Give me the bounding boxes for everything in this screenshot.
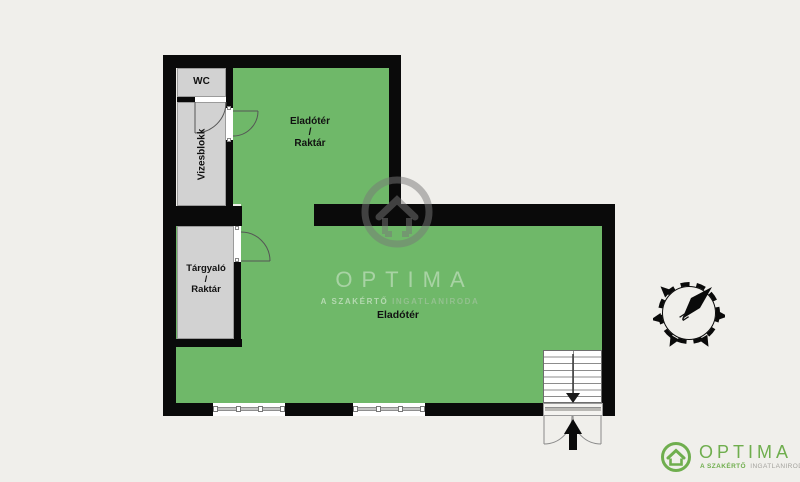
label-line: / <box>235 127 385 138</box>
stairs-divider <box>573 351 574 402</box>
room-label-sales-storage: Eladótér / Raktár <box>235 116 385 149</box>
label-line: Raktár <box>178 285 234 296</box>
door-jamb <box>227 106 231 110</box>
wall-top <box>163 55 401 68</box>
window <box>213 403 285 416</box>
label-line: Raktár <box>235 138 385 149</box>
door-jamb <box>235 258 239 262</box>
wall-bottom-c <box>425 403 543 416</box>
logo-tagline-strong: A SZAKÉRTŐ <box>700 463 746 470</box>
window-post <box>236 406 241 412</box>
stairs <box>543 350 602 403</box>
entrance-threshold <box>543 403 603 416</box>
floor-area-passage <box>241 204 314 226</box>
window-post <box>213 406 218 412</box>
wall-bottom-a <box>163 403 213 416</box>
watermark-house-icon <box>355 170 439 254</box>
entrance-double-door <box>544 416 601 444</box>
window-sill <box>213 407 285 411</box>
room-label-wet-block: Vizesblokk <box>196 128 207 180</box>
door-opening-meeting <box>234 226 241 262</box>
entrance-sill <box>545 407 601 411</box>
wall-bottom-b <box>285 403 353 416</box>
label-line: Eladótér <box>235 116 385 127</box>
wall-meeting-bottom <box>163 339 242 347</box>
door-opening-upper <box>226 108 233 140</box>
window-post <box>398 406 403 412</box>
logo-brand: OPTIMA <box>699 442 792 463</box>
room-label-wc: WC <box>177 76 226 87</box>
wall-grayrooms-right-lower <box>226 140 233 206</box>
door-jamb <box>235 226 239 230</box>
wall-meeting-right <box>234 262 241 339</box>
watermark-tagline: A SZAKÉRTŐ INGATLANIRODA <box>300 297 500 306</box>
room-label-sales-floor: Eladótér <box>298 309 498 321</box>
wall-left <box>163 55 176 416</box>
window-sill <box>353 407 425 411</box>
wall-wetblock-meeting <box>163 206 242 226</box>
watermark-brand: OPTIMA <box>300 267 500 293</box>
window-post <box>376 406 381 412</box>
entrance-arrow-icon <box>564 419 582 450</box>
wall-grayrooms-right-upper <box>226 68 233 108</box>
window <box>353 403 425 416</box>
logo-tagline: A SZAKÉRTŐ INGATLANIRODA <box>700 463 800 470</box>
window-post <box>420 406 425 412</box>
window-post <box>280 406 285 412</box>
label-line: Tárgyaló <box>178 264 234 275</box>
watermark-tagline-strong: A SZAKÉRTŐ <box>321 297 389 306</box>
wall-right <box>602 204 615 416</box>
room-label-meeting-storage: Tárgyaló / Raktár <box>178 264 234 296</box>
window-post <box>353 406 358 412</box>
logo-tagline-rest: INGATLANIRODA <box>750 463 800 470</box>
watermark-tagline-rest: INGATLANIRODA <box>392 297 479 306</box>
door-jamb <box>227 138 231 142</box>
compass-icon: N <box>653 276 725 350</box>
house-icon <box>659 440 693 474</box>
window-post <box>258 406 263 412</box>
room-label-wet-block-wrap: Vizesblokk <box>177 102 226 206</box>
optima-logo: OPTIMA A SZAKÉRTŐ INGATLANIRODA <box>659 438 795 476</box>
floorplan-canvas: OPTIMA A SZAKÉRTŐ INGATLANIRODA WC Vizes… <box>0 0 800 482</box>
